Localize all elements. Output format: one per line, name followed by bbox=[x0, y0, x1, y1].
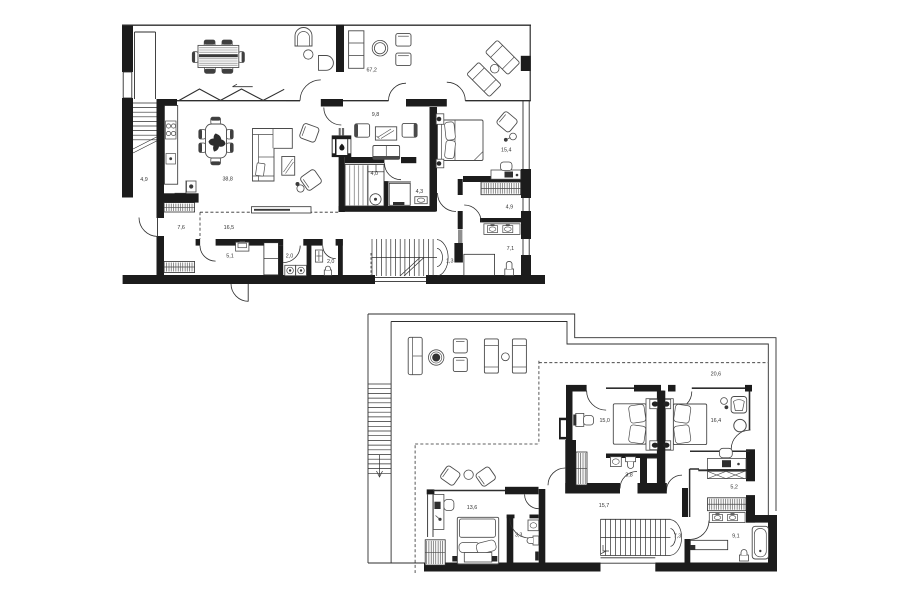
svg-text:4,9: 4,9 bbox=[140, 177, 148, 183]
svg-text:7,1: 7,1 bbox=[507, 246, 515, 252]
svg-text:13,6: 13,6 bbox=[467, 505, 478, 511]
svg-text:15,4: 15,4 bbox=[501, 147, 512, 153]
svg-text:7,6: 7,6 bbox=[177, 225, 185, 231]
svg-text:67,2: 67,2 bbox=[366, 68, 377, 74]
svg-text:15,0: 15,0 bbox=[599, 418, 610, 424]
svg-text:15,7: 15,7 bbox=[599, 503, 610, 509]
svg-text:4,3: 4,3 bbox=[416, 189, 424, 195]
svg-text:4,9: 4,9 bbox=[506, 205, 514, 211]
svg-text:38,8: 38,8 bbox=[222, 177, 233, 183]
svg-text:2,0: 2,0 bbox=[327, 259, 335, 265]
svg-text:20,6: 20,6 bbox=[711, 371, 722, 377]
svg-text:2,0: 2,0 bbox=[286, 253, 294, 259]
svg-text:5,1: 5,1 bbox=[226, 254, 234, 260]
svg-text:9,1: 9,1 bbox=[732, 534, 740, 540]
svg-text:16,5: 16,5 bbox=[224, 225, 235, 231]
svg-text:3,8: 3,8 bbox=[625, 472, 633, 478]
svg-text:4,0: 4,0 bbox=[371, 171, 379, 177]
svg-text:5,2: 5,2 bbox=[730, 485, 738, 491]
svg-text:3,3: 3,3 bbox=[515, 533, 523, 539]
svg-text:16,4: 16,4 bbox=[711, 418, 722, 424]
svg-text:9,8: 9,8 bbox=[372, 112, 380, 118]
svg-text:1,3: 1,3 bbox=[446, 259, 454, 265]
svg-text:7,3: 7,3 bbox=[674, 534, 682, 540]
